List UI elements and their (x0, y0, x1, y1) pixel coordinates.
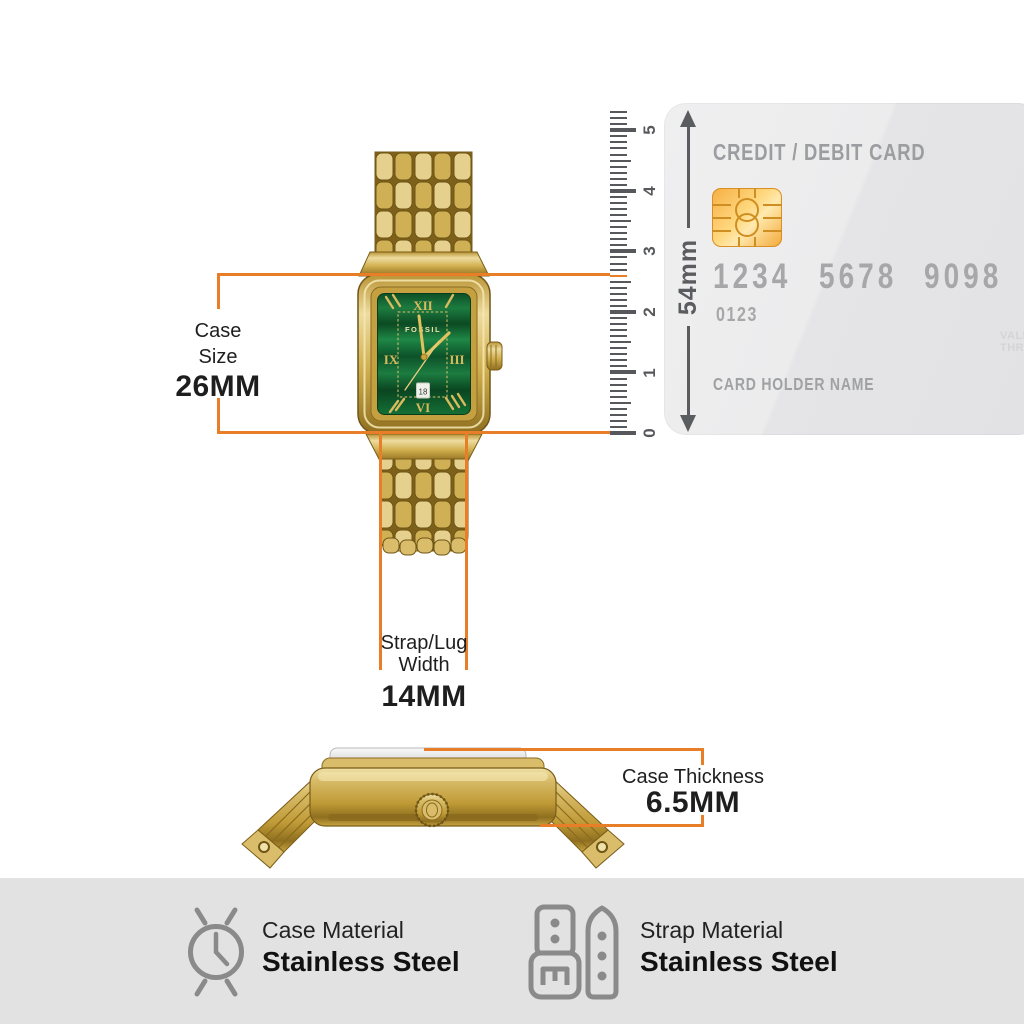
ruler-tick-mm (610, 226, 627, 228)
case-size-label-line2: Size (150, 344, 286, 370)
ruler-number-2: 2 (637, 299, 663, 325)
ruler-number-5: 5 (637, 117, 663, 143)
watch-front-view: FOSSIL XII IX III VI 18 (340, 145, 520, 570)
measure-arrow-line-top (687, 126, 690, 228)
ruler-tick-mm (610, 141, 627, 143)
case-material-block: Case Material Stainless Steel (262, 915, 460, 978)
ruler-tick-cm (610, 370, 636, 374)
ruler-tick-cm (610, 249, 636, 253)
watch-strap-icon (528, 903, 626, 1001)
strap-width-annotation: Strap/Lug Width 14MM (344, 632, 504, 714)
ruler-tick-mm (610, 299, 627, 301)
strap-width-label-line1: Strap/Lug (344, 632, 504, 654)
ruler-number-1: 1 (637, 360, 663, 386)
ruler-tick-mm (610, 238, 627, 240)
ruler-tick-mm (610, 184, 627, 186)
ruler-tick-mm (610, 147, 627, 149)
ruler-tick-mm (610, 123, 627, 125)
ruler-tick-mm (610, 378, 627, 380)
watch-case-icon (184, 906, 248, 998)
ruler-tick-mm (610, 347, 627, 349)
ruler-tick-mm (610, 166, 627, 168)
case-material-label: Case Material (262, 915, 460, 945)
strap-width-value: 14MM (344, 680, 504, 714)
ruler-tick-mm (610, 390, 627, 392)
case-thickness-line-top (424, 748, 704, 751)
strap-material-block: Strap Material Stainless Steel (640, 915, 838, 978)
card-number-group-2: 5678 (819, 263, 917, 291)
watch-dimensions-infographic: FOSSIL XII IX III VI 18 (0, 0, 1024, 1024)
ruler-tick-mm (610, 256, 627, 258)
ruler-tick-mm (610, 202, 627, 204)
card-chip-icon (712, 188, 782, 247)
ruler-tick-mm (610, 196, 627, 198)
ruler-tick-mm (610, 420, 627, 422)
ruler-number-3: 3 (637, 238, 663, 264)
ruler-number-0: 0 (637, 420, 663, 446)
measure-arrow-up-icon (680, 110, 696, 127)
crown (487, 342, 502, 370)
case-size-line-bottom (217, 431, 610, 434)
date-text: 18 (419, 388, 428, 397)
card-number-group-3: 9098 (924, 263, 1022, 291)
watch-side-view (238, 735, 638, 870)
ruler-tick-mm (610, 287, 627, 289)
ruler-tick-mm (610, 329, 627, 331)
case-material-value: Stainless Steel (262, 945, 460, 978)
case-size-bracket-top (217, 273, 220, 309)
ruler-tick-mm (610, 365, 627, 367)
ruler-tick-cm (610, 128, 636, 132)
card-number-group-1: 1234 (713, 263, 811, 291)
ruler-tick-mm (610, 172, 627, 174)
ruler-tick-mm (610, 305, 627, 307)
ruler-tick-mm (610, 426, 627, 428)
case-thickness-value: 6.5MM (593, 788, 793, 818)
case-thickness-line-bottom (540, 824, 704, 827)
card-chip-contacts (712, 188, 782, 247)
ruler-tick-mm (610, 117, 627, 119)
side-crown (416, 794, 448, 826)
ruler-tick-mm (610, 353, 627, 355)
svg-text:XII: XII (413, 298, 433, 313)
strap-material-value: Stainless Steel (640, 945, 838, 978)
card-sub-number: 0123 (716, 305, 769, 325)
ruler-tick-mm (610, 275, 627, 277)
ruler-tick-mm (610, 111, 627, 113)
ruler-tick-mm (610, 323, 627, 325)
card-title: CREDIT / DEBIT CARD (713, 140, 979, 164)
ruler-tick-mm (610, 396, 627, 398)
ruler-tick-mm (610, 281, 631, 283)
ruler-tick-mm (610, 154, 627, 156)
measure-label-54mm: 54mm (673, 217, 703, 337)
ruler-tick-mm (610, 359, 627, 361)
credit-card: CREDIT / DEBIT CARD 1234 5678 9098 0123 … (664, 103, 1024, 435)
case-size-label-line1: Case (150, 318, 286, 344)
ruler-tick-mm (610, 135, 627, 137)
ruler-number-4: 4 (637, 178, 663, 204)
svg-text:IX: IX (384, 352, 399, 367)
ruler-tick-mm (610, 414, 627, 416)
ruler-tick-mm (610, 341, 631, 343)
ruler-tick-mm (610, 408, 627, 410)
svg-text:VI: VI (416, 400, 430, 415)
ruler-tick-mm (610, 269, 627, 271)
strap-width-label-line2: Width (344, 654, 504, 676)
ruler-tick-mm (610, 220, 631, 222)
case-size-value: 26MM (150, 370, 286, 404)
ruler-tick-mm (610, 232, 627, 234)
ruler-tick-mm (610, 317, 627, 319)
ruler-tick-mm (610, 160, 631, 162)
case-thickness-bracket-top (701, 748, 704, 765)
svg-text:III: III (449, 352, 464, 367)
strap-material-label: Strap Material (640, 915, 838, 945)
case-thickness-label: Case Thickness (593, 766, 793, 788)
ruler-tick-mm (610, 384, 627, 386)
case-size-annotation: Case Size 26MM (150, 318, 286, 404)
ruler-tick-mm (610, 244, 627, 246)
case-size-line-top (217, 273, 610, 276)
card-holder-label: CARD HOLDER NAME (713, 374, 915, 394)
ruler-tick-cm (610, 310, 636, 314)
ruler-tick-mm (610, 335, 627, 337)
case-thickness-annotation: Case Thickness 6.5MM (593, 766, 793, 818)
measure-arrow-line-bottom (687, 326, 690, 416)
ruler-tick-mm (610, 214, 627, 216)
ruler-tick-cm (610, 431, 636, 435)
ruler-tick-mm (610, 263, 627, 265)
ruler-tick-mm (610, 293, 627, 295)
ruler-tick-mm (610, 208, 627, 210)
materials-bar: Case Material Stainless Steel Strap Mate… (0, 878, 1024, 1024)
ruler-tick-mm (610, 178, 627, 180)
bracelet-top (359, 152, 489, 276)
card-valid-thru: VALIDTHRU (1000, 330, 1024, 354)
bracelet-end-links (383, 538, 466, 555)
dial-brand-text: FOSSIL (405, 325, 441, 334)
ruler-tick-mm (610, 402, 631, 404)
watch-dial: FOSSIL XII IX III VI 18 (378, 294, 471, 416)
measure-arrow-down-icon (680, 415, 696, 432)
ruler-tick-cm (610, 189, 636, 193)
